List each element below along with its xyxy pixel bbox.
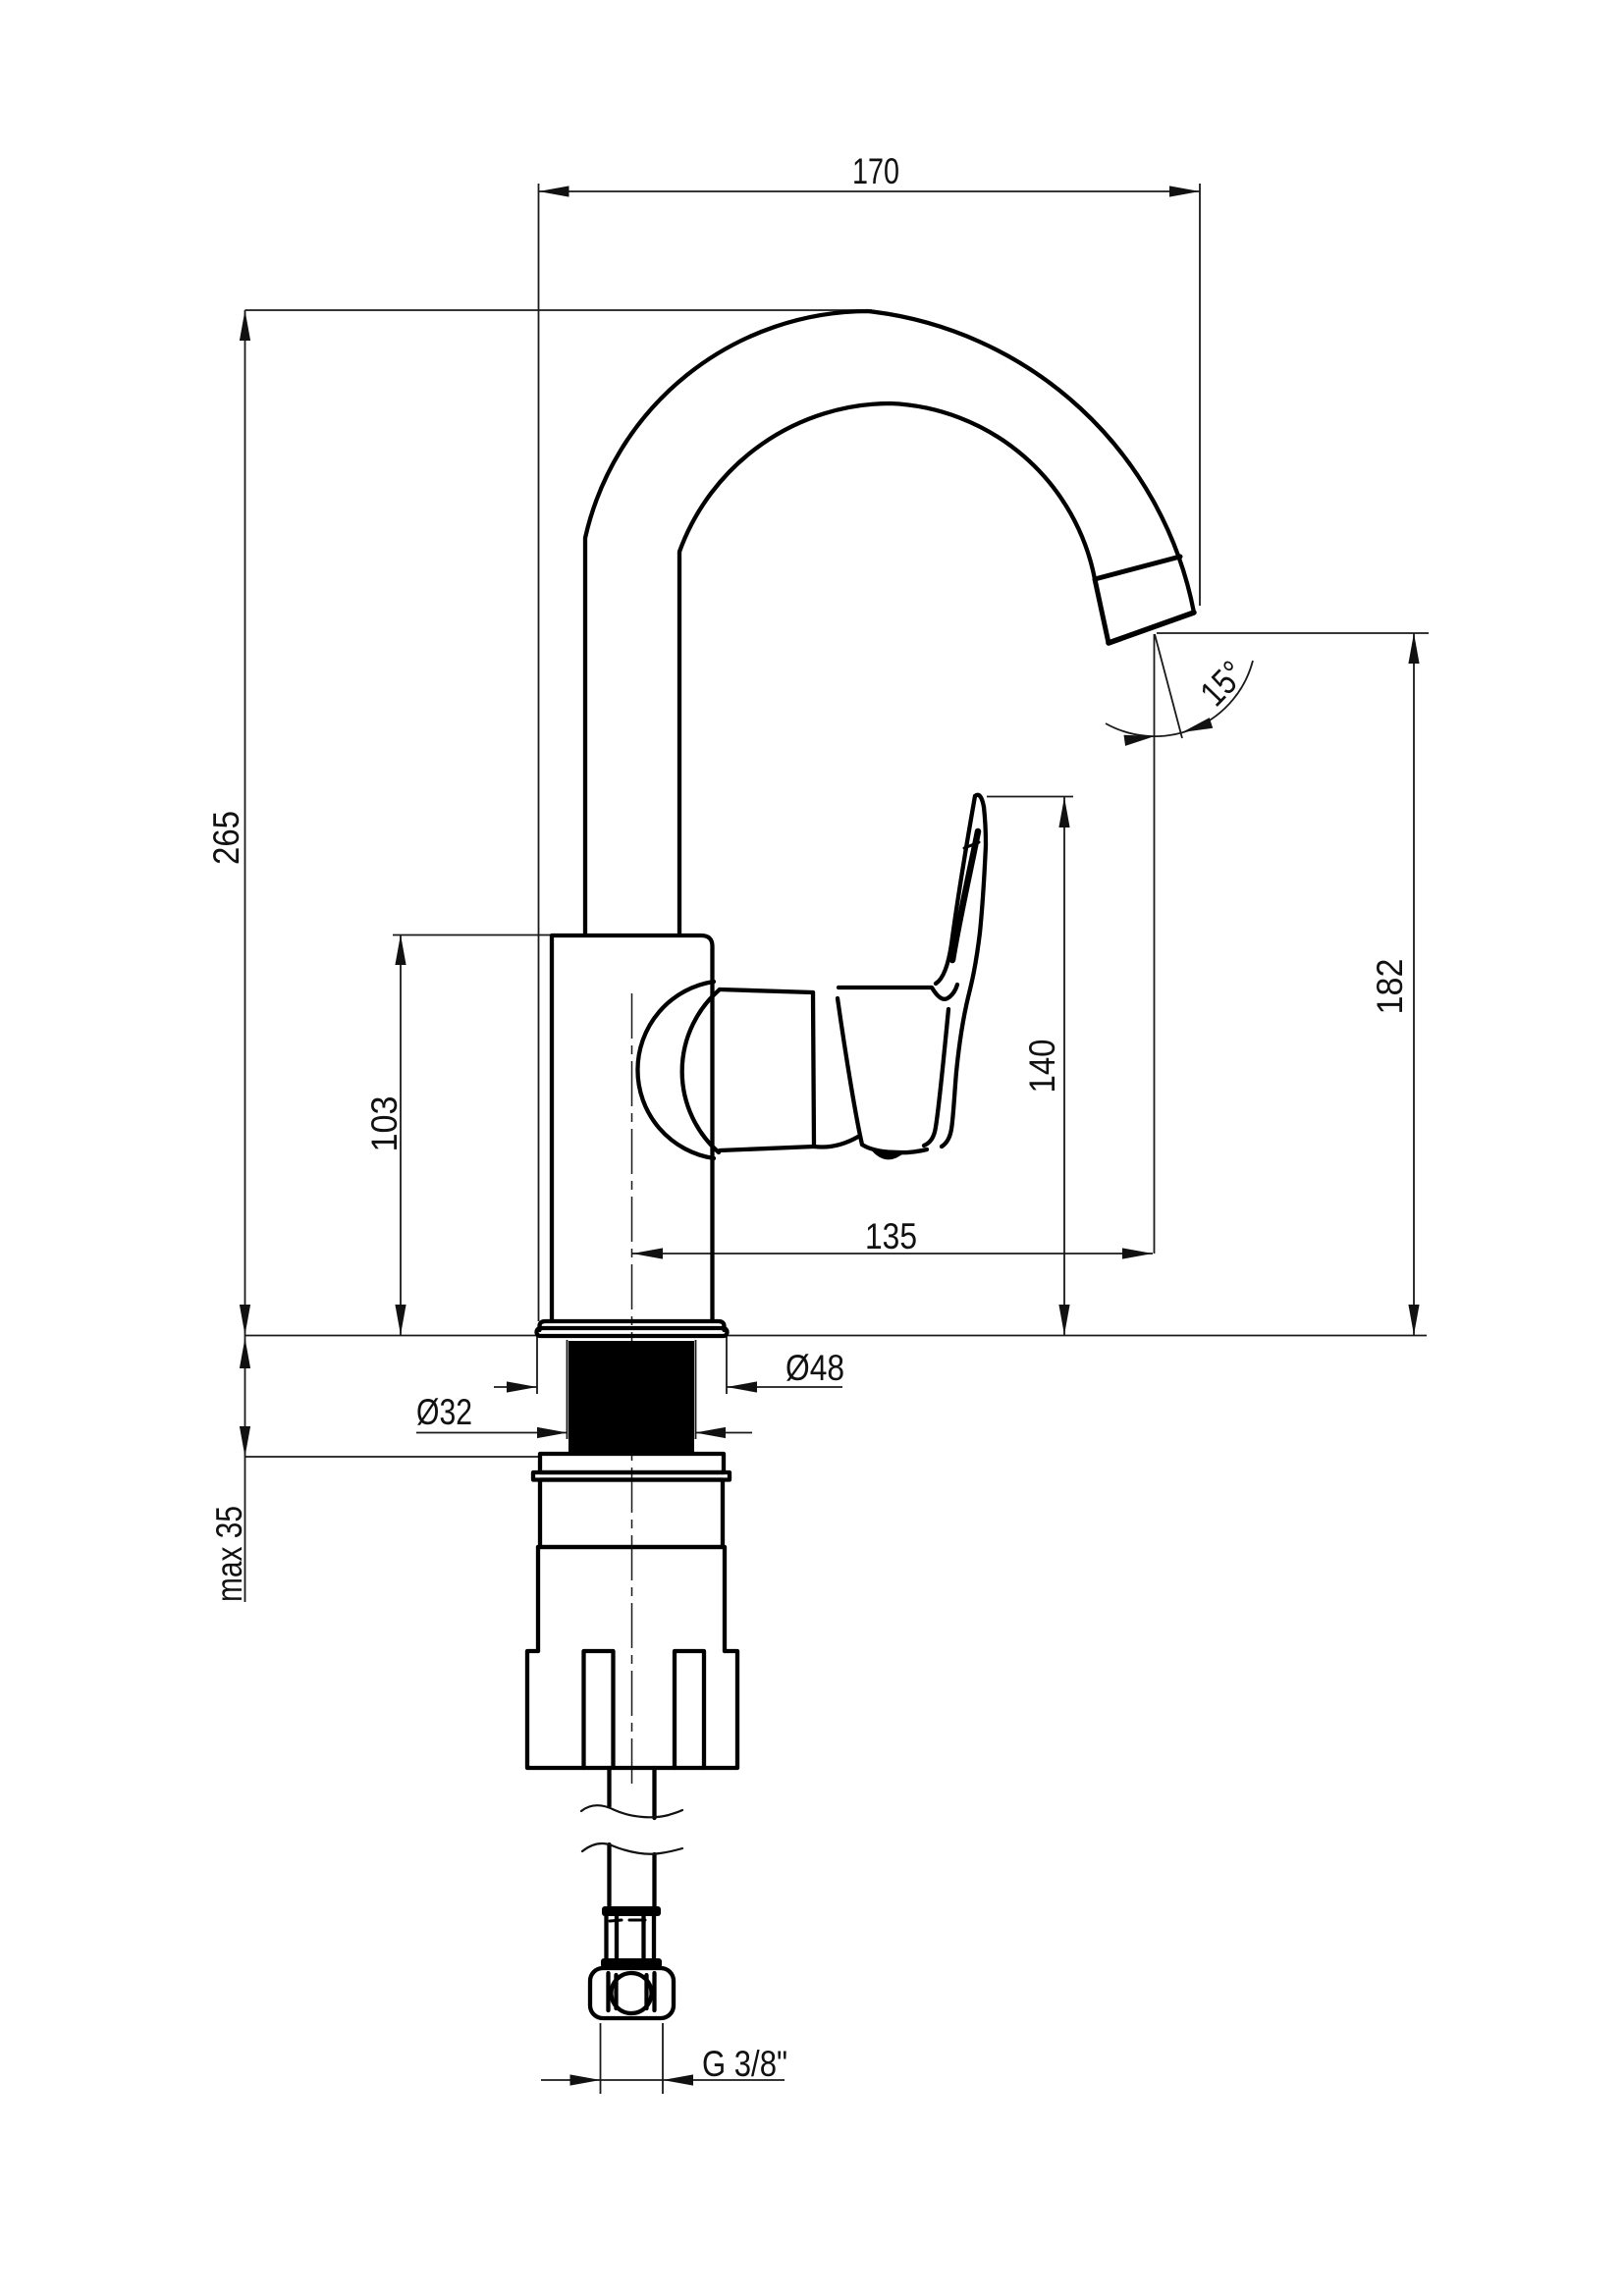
svg-text:265: 265 [206, 811, 246, 865]
svg-text:15°: 15° [1192, 653, 1252, 714]
svg-text:135: 135 [865, 1216, 917, 1256]
svg-text:182: 182 [1370, 959, 1410, 1015]
svg-text:max 35: max 35 [209, 1506, 249, 1602]
svg-text:140: 140 [1022, 1040, 1062, 1094]
svg-text:170: 170 [852, 151, 899, 191]
svg-text:Ø48: Ø48 [785, 1348, 844, 1388]
svg-text:Ø32: Ø32 [416, 1392, 472, 1432]
svg-text:103: 103 [364, 1096, 405, 1152]
svg-text:G 3/8": G 3/8" [702, 2044, 787, 2084]
